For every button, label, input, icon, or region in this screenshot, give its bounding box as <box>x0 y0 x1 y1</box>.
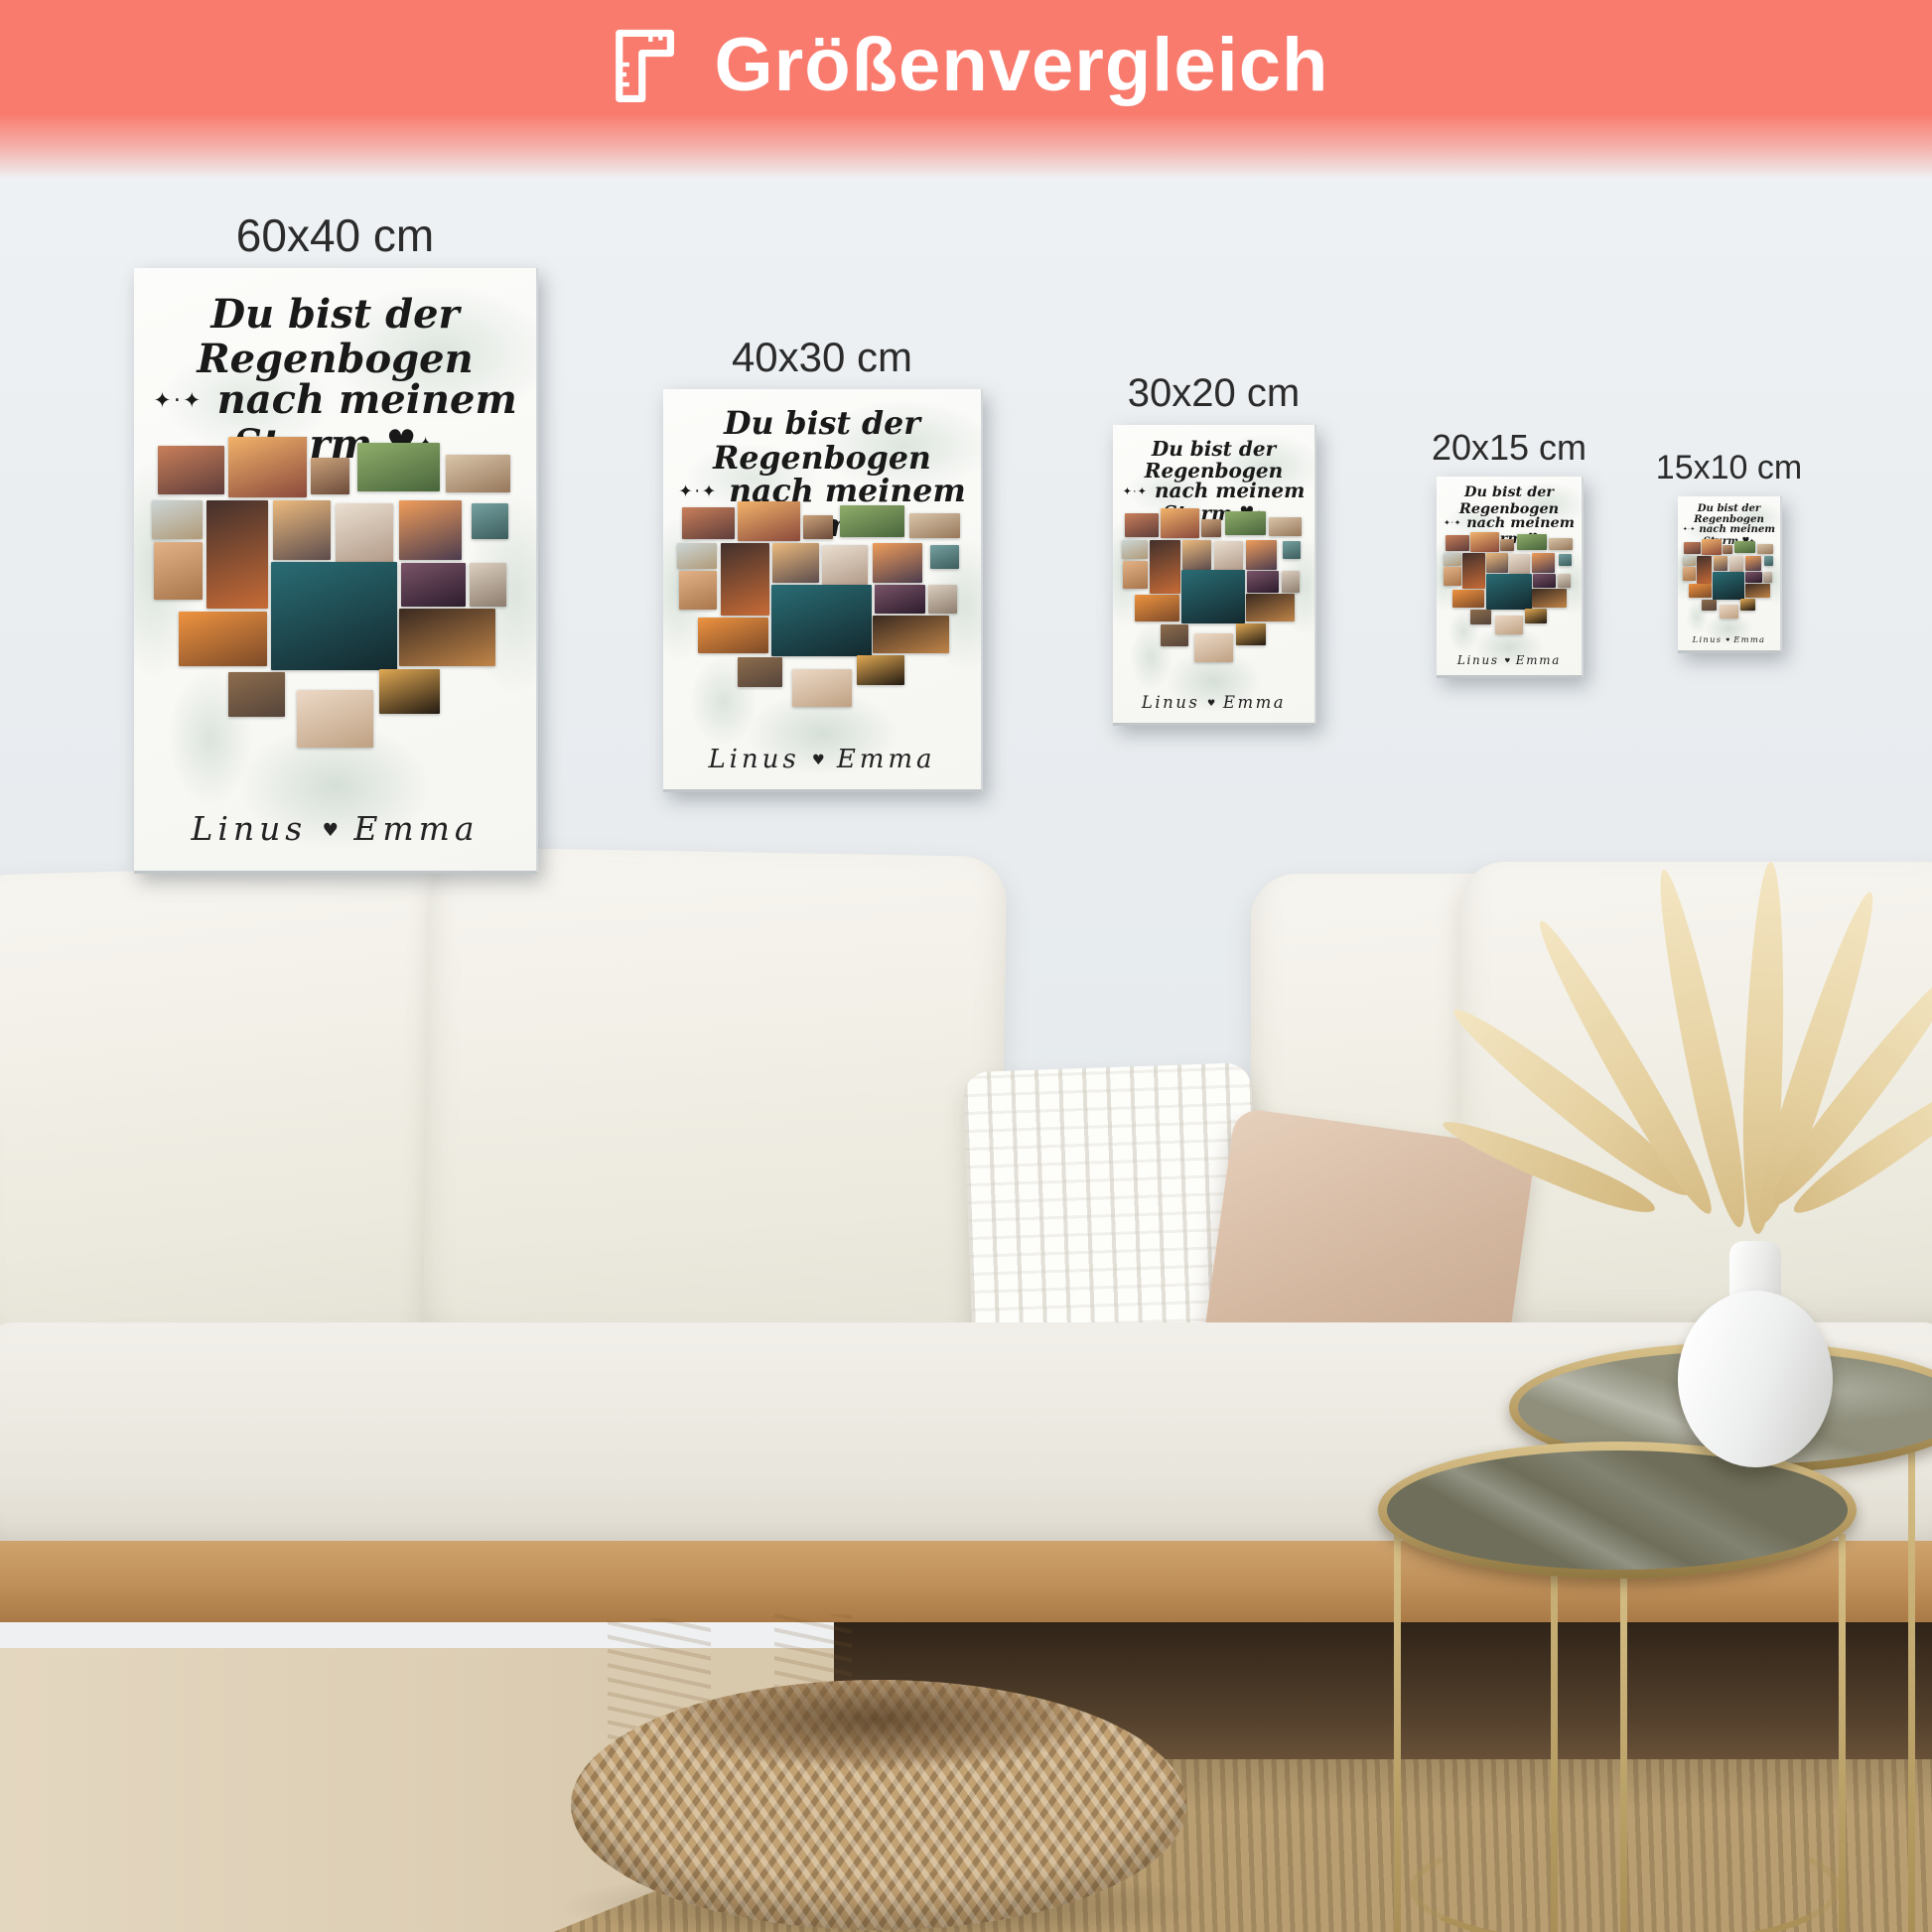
photo-sparklers <box>1525 609 1547 623</box>
photo-night-party-lights <box>771 585 872 657</box>
name-right: Emma <box>1223 693 1286 712</box>
couple-names: Linus ♥ Emma <box>134 809 536 848</box>
photo-palm-sunset-dancers <box>738 501 799 541</box>
photo-garden-dinner <box>1734 541 1755 553</box>
size-comparison-image: 60x40 cm Du bist der Regenbogen ✦·✦ nach… <box>0 0 1932 1932</box>
photo-candlelight-dinner <box>873 616 949 654</box>
photo-palm-sunset-dancers <box>1470 532 1498 552</box>
photo-couple-snack <box>1500 539 1514 551</box>
heart-icon: ♥ <box>1207 699 1215 709</box>
photo-palm-beach-sunset <box>1714 556 1728 572</box>
photo-ocean-sunset <box>873 543 922 583</box>
photo-silhouette-group <box>401 563 466 607</box>
photo-garden-dinner <box>1517 534 1547 550</box>
poster-title: Du bist der Regenbogen ✦·✦ nach meinem S… <box>146 293 524 467</box>
photo-beach-party <box>158 446 224 494</box>
photo-family-beach <box>297 690 373 748</box>
photo-family-beach <box>1495 616 1523 634</box>
couple-names: Linus ♥ Emma <box>1678 634 1780 644</box>
photo-collage-canvas-40x30: Du bist der Regenbogen ✦·✦ nach meinem S… <box>663 389 983 792</box>
sparkle-decor-left: ✦·✦ <box>153 389 203 414</box>
photo-family-beach <box>792 669 853 707</box>
photo-night-party-lights <box>1181 570 1245 623</box>
name-left: Linus <box>192 809 308 848</box>
photo-beach-couple <box>470 563 505 607</box>
table-leg <box>1908 1420 1915 1932</box>
photo-couple-snack <box>311 458 348 493</box>
photo-friends-in-white <box>1729 556 1744 572</box>
photo-palm-beach-sunset <box>273 500 332 561</box>
photo-garden-dinner <box>357 443 440 491</box>
photo-palm-beach-sunset <box>1486 553 1507 573</box>
photo-collage-canvas-60x40: Du bist der Regenbogen ✦·✦ nach meinem S… <box>134 268 538 874</box>
photo-sparklers <box>1740 599 1755 610</box>
photo-ocean-sunset <box>399 500 462 561</box>
photo-campfire <box>207 500 268 609</box>
photo-table-gathering <box>1702 600 1716 611</box>
photo-sunset-toast <box>1452 590 1484 608</box>
photo-campfire <box>1462 553 1484 589</box>
table-top-small <box>1378 1442 1857 1579</box>
photo-night-party-lights <box>271 562 398 670</box>
photo-beach-couple <box>1763 572 1772 583</box>
photo-sunset-toast <box>1689 584 1712 598</box>
photo-family-shore <box>152 500 203 539</box>
vase <box>1678 1291 1833 1467</box>
sparkle-decor-left: ✦·✦ <box>1683 527 1696 533</box>
photo-collage-canvas-20x15: Du bist der Regenbogen ✦·✦ nach meinem S… <box>1437 477 1584 678</box>
photo-beach-walk <box>679 571 717 609</box>
size-label-30x20: 30x20 cm <box>1128 371 1300 416</box>
heart-icon: ♥ <box>323 820 339 841</box>
photo-family-shore <box>1683 556 1696 566</box>
photo-friends-in-white <box>1214 541 1243 571</box>
poster-title-line1: Du bist der Regenbogen <box>1441 484 1577 516</box>
couple-names: Linus ♥ Emma <box>1437 653 1582 667</box>
photo-sparklers <box>1236 623 1266 645</box>
photo-candlelight-dinner <box>1246 594 1295 622</box>
photo-palm-beach-sunset <box>772 543 818 583</box>
photo-beach-friends <box>446 455 510 492</box>
photo-hilltop-friends <box>472 503 507 539</box>
name-left: Linus <box>1142 693 1199 712</box>
photo-candlelight-dinner <box>1745 584 1770 599</box>
photo-family-shore <box>1444 553 1461 566</box>
photo-beach-walk <box>1123 561 1147 590</box>
size-comparison-banner: Größenvergleich <box>0 0 1932 179</box>
poster-title: Du bist der Regenbogen ✦·✦ nach meinem S… <box>1681 503 1777 547</box>
poster-title: Du bist der Regenbogen ✦·✦ nach meinem S… <box>1119 438 1309 525</box>
name-right: Emma <box>1516 653 1561 667</box>
photo-ocean-sunset <box>1745 556 1761 572</box>
photo-palm-sunset-dancers <box>1702 539 1722 555</box>
size-label-60x40: 60x40 cm <box>236 208 434 262</box>
photo-beach-friends <box>1549 538 1572 550</box>
name-right: Emma <box>837 745 936 774</box>
photo-friends-in-white <box>1509 554 1530 574</box>
sofa-back-cushion-left <box>0 862 492 1371</box>
photo-sparklers <box>857 655 904 685</box>
photo-table-gathering <box>1161 624 1188 646</box>
name-left: Linus <box>1457 653 1499 667</box>
photo-campfire <box>1697 556 1713 584</box>
photo-beach-couple <box>1558 574 1571 588</box>
photo-family-beach <box>1194 633 1233 662</box>
photo-sunset-toast <box>179 612 267 666</box>
poster-title-line1: Du bist der Regenbogen <box>1681 503 1777 526</box>
photo-beach-friends <box>909 513 960 538</box>
photo-beach-friends <box>1269 517 1301 536</box>
photo-couple-snack <box>1201 519 1220 537</box>
photo-family-shore <box>1122 540 1147 560</box>
photo-garden-dinner <box>840 505 905 537</box>
woven-pouf <box>571 1680 1186 1930</box>
photo-friends-in-white <box>336 503 394 564</box>
name-right: Emma <box>1733 634 1765 644</box>
couple-names: Linus ♥ Emma <box>663 745 981 774</box>
photo-friends-in-white <box>822 545 868 585</box>
photo-table-gathering <box>1470 610 1490 624</box>
photo-ocean-sunset <box>1246 540 1277 570</box>
photo-couple-snack <box>1723 545 1732 554</box>
photo-sunset-toast <box>698 618 767 653</box>
banner-title: Größenvergleich <box>715 22 1329 108</box>
size-label-40x30: 40x30 cm <box>732 334 912 381</box>
photo-beach-walk <box>1444 567 1461 586</box>
heart-icon: ♥ <box>1725 638 1729 643</box>
photo-beach-party <box>1684 542 1701 554</box>
photo-sparklers <box>379 669 440 714</box>
photo-campfire <box>721 543 769 616</box>
sparkle-decor-left: ✦·✦ <box>1444 518 1461 527</box>
size-label-15x10: 15x10 cm <box>1656 449 1802 487</box>
glass-top <box>1387 1450 1848 1570</box>
poster-title-line1: Du bist der Regenbogen <box>1119 438 1309 483</box>
photo-beach-walk <box>1683 567 1695 582</box>
size-label-20x15: 20x15 cm <box>1432 427 1587 469</box>
photo-collage-canvas-15x10: Du bist der Regenbogen ✦·✦ nach meinem S… <box>1678 496 1782 653</box>
photo-collage-canvas-30x20: Du bist der Regenbogen ✦·✦ nach meinem S… <box>1113 425 1316 726</box>
photo-beach-friends <box>1757 544 1773 554</box>
photo-palm-beach-sunset <box>1182 540 1211 570</box>
name-left: Linus <box>1693 634 1723 644</box>
photo-couple-snack <box>803 515 833 539</box>
photo-ocean-sunset <box>1532 553 1555 573</box>
photo-beach-couple <box>928 585 957 614</box>
photo-table-gathering <box>738 657 782 687</box>
table-leg <box>1839 1534 1846 1932</box>
ruler-icon <box>604 22 689 107</box>
photo-palm-sunset-dancers <box>228 437 307 497</box>
photo-beach-party <box>1446 535 1469 551</box>
photo-family-shore <box>677 543 717 569</box>
photo-table-gathering <box>228 672 285 717</box>
photo-candlelight-dinner <box>1532 589 1567 608</box>
photo-family-beach <box>1720 605 1739 620</box>
sofa-back-cushion-center <box>423 847 1008 1368</box>
photo-silhouette-group <box>875 585 925 614</box>
photo-night-party-lights <box>1713 572 1744 600</box>
photo-beach-couple <box>1282 571 1300 593</box>
photo-silhouette-group <box>1247 571 1279 593</box>
sparkle-decor-left: ✦·✦ <box>678 482 718 501</box>
photo-hilltop-friends <box>1559 554 1572 566</box>
poster-title-line1: Du bist der Regenbogen <box>673 406 972 477</box>
photo-candlelight-dinner <box>399 609 495 666</box>
photo-night-party-lights <box>1486 574 1532 610</box>
heart-icon: ♥ <box>1504 657 1510 665</box>
photo-sunset-toast <box>1135 595 1179 621</box>
photo-palm-sunset-dancers <box>1161 508 1200 538</box>
photo-garden-dinner <box>1225 511 1267 535</box>
photo-hilltop-friends <box>1764 556 1773 565</box>
table-leg <box>1394 1529 1401 1932</box>
photo-hilltop-friends <box>1283 541 1301 559</box>
heart-icon: ♥ <box>812 753 825 768</box>
couple-names: Linus ♥ Emma <box>1113 693 1314 712</box>
photo-silhouette-group <box>1745 572 1761 583</box>
photo-hilltop-friends <box>930 545 959 569</box>
photo-beach-walk <box>154 542 203 600</box>
photo-beach-party <box>1125 513 1158 537</box>
photo-silhouette-group <box>1533 574 1556 588</box>
name-left: Linus <box>708 745 799 774</box>
sparkle-decor-left: ✦·✦ <box>1123 485 1148 498</box>
name-right: Emma <box>353 809 479 848</box>
photo-beach-party <box>682 507 735 539</box>
photo-campfire <box>1150 540 1180 594</box>
poster-title-line1: Du bist der Regenbogen <box>146 293 524 382</box>
